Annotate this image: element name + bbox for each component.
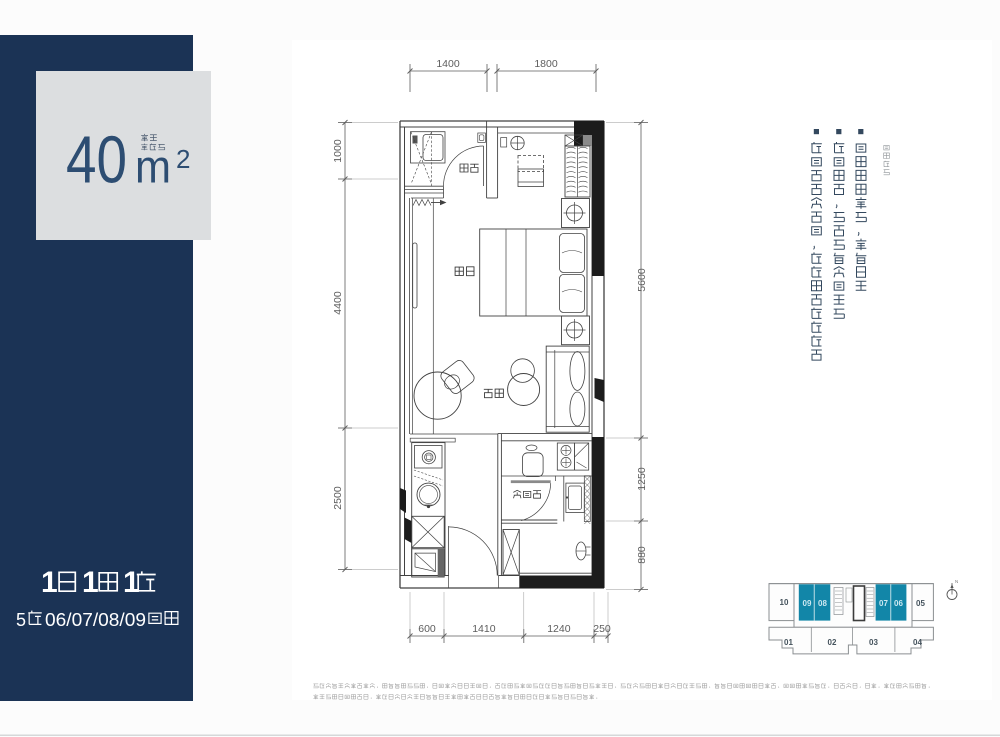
svg-text:1: 1 bbox=[41, 566, 58, 599]
svg-text:5: 5 bbox=[16, 610, 26, 630]
svg-text:2500: 2500 bbox=[332, 486, 344, 510]
svg-text:5600: 5600 bbox=[636, 268, 648, 292]
svg-text:07: 07 bbox=[879, 599, 888, 608]
svg-text:1: 1 bbox=[123, 566, 140, 599]
svg-text:1410: 1410 bbox=[472, 623, 496, 635]
svg-text:1250: 1250 bbox=[636, 467, 648, 491]
svg-text:2: 2 bbox=[176, 144, 190, 174]
svg-text:10: 10 bbox=[780, 598, 789, 607]
svg-text:06/07/08/09: 06/07/08/09 bbox=[45, 610, 146, 630]
svg-text:880: 880 bbox=[636, 546, 648, 564]
svg-text:1240: 1240 bbox=[547, 623, 571, 635]
svg-text:05: 05 bbox=[916, 599, 925, 608]
svg-text:250: 250 bbox=[593, 623, 611, 635]
svg-text:02: 02 bbox=[828, 638, 837, 647]
svg-text:09: 09 bbox=[803, 599, 812, 608]
svg-text:04: 04 bbox=[913, 638, 922, 647]
svg-text:1000: 1000 bbox=[332, 139, 344, 163]
svg-text:m: m bbox=[135, 141, 171, 193]
svg-text:N: N bbox=[955, 579, 958, 584]
svg-text:08: 08 bbox=[818, 599, 827, 608]
svg-text:1400: 1400 bbox=[436, 58, 460, 70]
svg-text:03: 03 bbox=[869, 638, 878, 647]
svg-text:40: 40 bbox=[66, 123, 127, 198]
svg-text:06: 06 bbox=[894, 599, 903, 608]
svg-text:01: 01 bbox=[784, 638, 793, 647]
svg-text:1800: 1800 bbox=[534, 58, 558, 70]
svg-text:600: 600 bbox=[418, 623, 436, 635]
svg-text:4400: 4400 bbox=[332, 291, 344, 315]
svg-text:1: 1 bbox=[82, 566, 99, 599]
